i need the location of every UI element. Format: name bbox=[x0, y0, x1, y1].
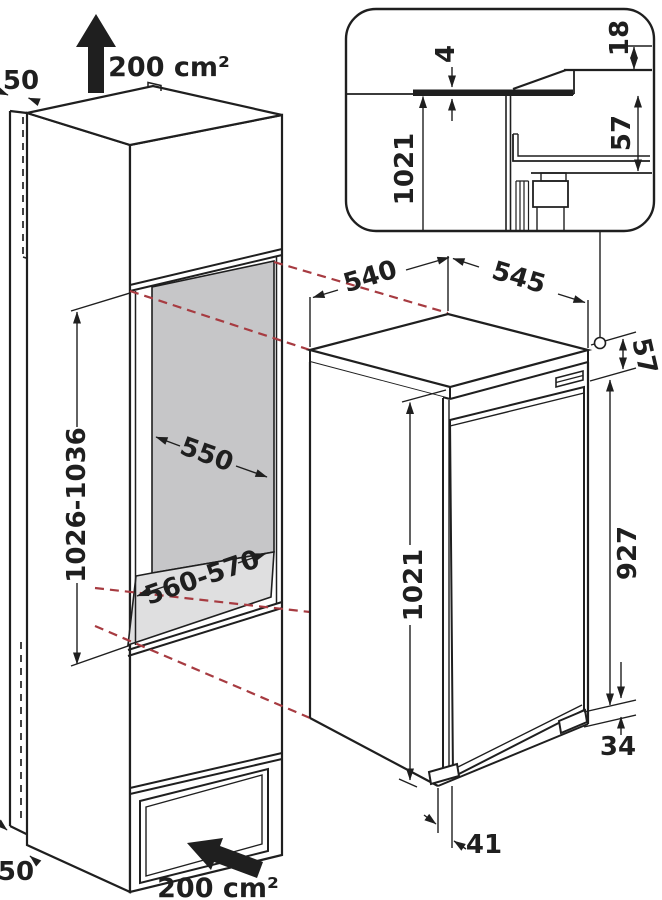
svg-text:18: 18 bbox=[605, 20, 635, 56]
dim-door-bottom-offset: 41 bbox=[466, 830, 502, 860]
svg-text:545: 545 bbox=[488, 256, 549, 300]
vent-area-bottom-label: 200 cm² bbox=[157, 873, 279, 900]
dim-bottom-clearance: 50 bbox=[0, 857, 34, 887]
svg-text:4: 4 bbox=[431, 45, 461, 63]
svg-text:57: 57 bbox=[625, 335, 662, 377]
appliance bbox=[310, 314, 588, 786]
svg-text:927: 927 bbox=[613, 526, 643, 580]
vent-area-top-label: 200 cm² bbox=[108, 52, 230, 83]
dim-niche-height: 1026-1036 bbox=[62, 427, 92, 583]
installation-diagram: 50 200 cm² 550 1026-1036 560-570 50 200 … bbox=[0, 0, 662, 900]
inset-dim-appliance-height: 1021 bbox=[390, 133, 420, 205]
svg-text:1026-1036: 1026-1036 bbox=[62, 427, 92, 583]
svg-text:540: 540 bbox=[340, 255, 401, 299]
dim-appliance-width: 545 bbox=[488, 256, 549, 300]
hinge-detail-marker bbox=[595, 338, 606, 349]
inset-dim-gap: 4 bbox=[431, 45, 461, 63]
svg-text:1021: 1021 bbox=[390, 133, 420, 205]
dim-door-height: 927 bbox=[613, 526, 643, 580]
svg-text:1021: 1021 bbox=[399, 549, 429, 621]
dim-appliance-height: 1021 bbox=[399, 545, 429, 625]
dim-plinth-height: 34 bbox=[600, 732, 636, 762]
fixing-plate bbox=[413, 90, 573, 97]
dim-appliance-depth: 540 bbox=[340, 255, 401, 299]
dim-top-clearance: 50 bbox=[3, 66, 39, 96]
installation-diagram-page: 50 200 cm² 550 1026-1036 560-570 50 200 … bbox=[0, 0, 662, 900]
niche-back-wall bbox=[152, 261, 274, 573]
dim-top-hinge-offset: 57 bbox=[625, 335, 662, 377]
inset-dim-panel-thickness: 18 bbox=[605, 20, 635, 56]
svg-text:57: 57 bbox=[607, 115, 637, 151]
inset-dim-hinge-offset: 57 bbox=[607, 115, 637, 151]
